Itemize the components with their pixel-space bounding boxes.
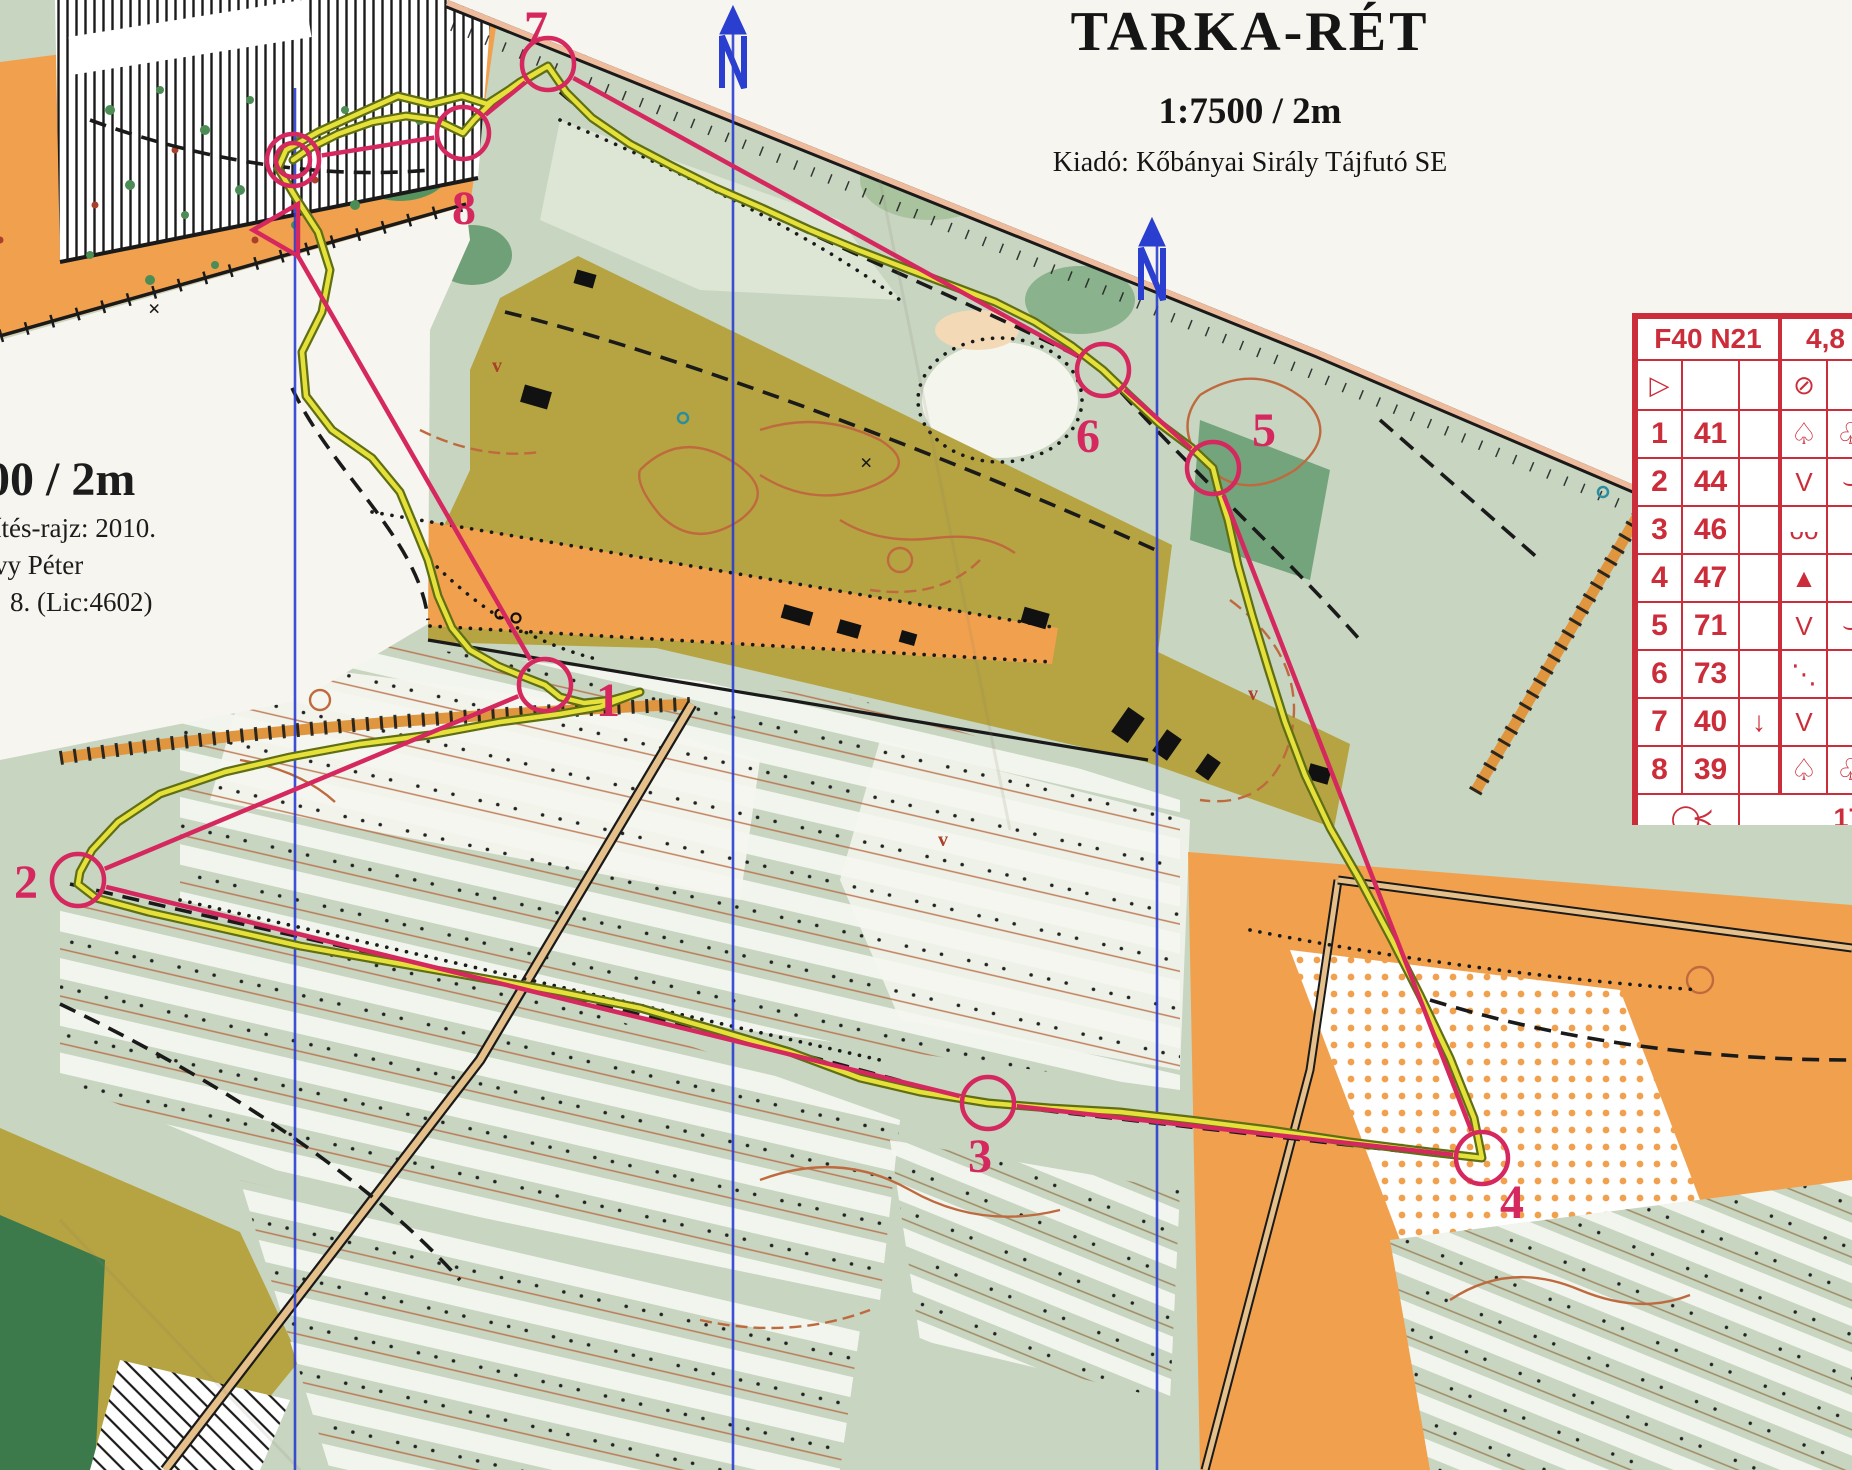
control-number-label: 7	[524, 2, 548, 55]
finish-route-symbol: ◯≺	[1637, 794, 1739, 825]
feature-symbol-thicket: ♧	[1827, 410, 1852, 458]
control-code: 44	[1682, 458, 1739, 506]
control-code: 46	[1682, 506, 1739, 554]
control-code: 40	[1682, 698, 1739, 746]
svg-text:×: ×	[148, 296, 161, 321]
control-number: 6	[1637, 650, 1682, 698]
control-code: 71	[1682, 602, 1739, 650]
control-number: 4	[1637, 554, 1682, 602]
svg-text:v: v	[492, 355, 502, 377]
control-number: 3	[1637, 506, 1682, 554]
control-row: 346ᴗᴗ	[1637, 506, 1852, 554]
scanned-orienteering-map-page: × × v v v v 12345678 TARKA-RÉT 1:7500 / …	[0, 0, 1852, 1470]
control-code: 39	[1682, 746, 1739, 794]
control-row: 740↓V	[1637, 698, 1852, 746]
control-row: 839♤♧	[1637, 746, 1852, 794]
svg-text:v: v	[938, 829, 948, 851]
feature-symbol-gully: V	[1780, 602, 1827, 650]
start-cell-e	[1827, 360, 1852, 410]
margin-notes: 00 / 2m ítés-rajz: 2010. vy Péter 8. (Li…	[0, 452, 156, 618]
feature-symbol-tree: ♤	[1780, 746, 1827, 794]
feature-symbol-broken-ground: ᴗᴗ	[1780, 506, 1827, 554]
svg-text:v: v	[1248, 683, 1258, 705]
control-row: 571V⌣	[1637, 602, 1852, 650]
control-number: 5	[1637, 602, 1682, 650]
control-card-clip: F40 N21 4,8 ▷ ⊘ 141♤♧ 244V⌣ 346ᴗᴗ 447▲ 5…	[1632, 313, 1852, 825]
control-number-label: 5	[1252, 404, 1276, 457]
control-description-card: F40 N21 4,8 ▷ ⊘ 141♤♧ 244V⌣ 346ᴗᴗ 447▲ 5…	[1632, 313, 1852, 825]
finish-row: ◯≺ 170 m	[1637, 794, 1852, 825]
card-course-length: 4,8	[1780, 318, 1852, 360]
control-number: 8	[1637, 746, 1682, 794]
margin-note-line1: ítés-rajz: 2010.	[0, 513, 156, 544]
direction-arrow: ↓	[1739, 698, 1780, 746]
control-row: 244V⌣	[1637, 458, 1852, 506]
control-number-label: 8	[452, 182, 476, 235]
control-number-label: 1	[596, 674, 620, 727]
map-body: × × v v v v	[0, 0, 1852, 1470]
feature-symbol-thicket: ♧	[1827, 746, 1852, 794]
margin-scale-fragment: 00 / 2m	[0, 452, 156, 507]
control-number: 2	[1637, 458, 1682, 506]
finish-distance: 170 m	[1739, 794, 1852, 825]
control-code: 73	[1682, 650, 1739, 698]
start-cell-c	[1739, 360, 1780, 410]
margin-note-line2: vy Péter	[0, 550, 156, 581]
start-triangle-symbol: ▷	[1637, 360, 1682, 410]
feature-symbol-tree: ♤	[1780, 410, 1827, 458]
title-block: TARKA-RÉT 1:7500 / 2m Kiadó: Kőbányai Si…	[930, 0, 1570, 179]
map-title: TARKA-RÉT	[930, 0, 1570, 64]
control-row: 141♤♧	[1637, 410, 1852, 458]
control-number-label: 4	[1500, 1176, 1524, 1229]
feature-symbol-knoll: ▲	[1780, 554, 1827, 602]
control-number: 1	[1637, 410, 1682, 458]
start-feature-symbol: ⊘	[1780, 360, 1827, 410]
svg-text:×: ×	[860, 450, 873, 475]
control-number: 7	[1637, 698, 1682, 746]
dense-green	[0, 1215, 105, 1470]
feature-symbol-shallow: ⌣	[1827, 602, 1852, 650]
feature-symbol-gully: V	[1780, 458, 1827, 506]
orienteering-map: × × v v v v 12345678	[0, 0, 1852, 1470]
map-publisher: Kiadó: Kőbányai Sirály Tájfutó SE	[930, 147, 1570, 179]
margin-note-line3: 8. (Lic:4602)	[10, 587, 156, 618]
feature-symbol-gully: V	[1780, 698, 1827, 746]
control-code: 41	[1682, 410, 1739, 458]
control-number-label: 6	[1076, 410, 1100, 463]
control-number-label: 3	[968, 1130, 992, 1183]
card-class-label: F40 N21	[1637, 318, 1780, 360]
control-row: 447▲	[1637, 554, 1852, 602]
start-cell-b	[1682, 360, 1739, 410]
map-scale: 1:7500 / 2m	[930, 90, 1570, 133]
control-code: 47	[1682, 554, 1739, 602]
feature-symbol-shallow: ⌣	[1827, 458, 1852, 506]
control-row: 673⋱	[1637, 650, 1852, 698]
control-number-label: 2	[14, 856, 38, 909]
feature-symbol-ditch-dotted: ⋱	[1780, 650, 1827, 698]
